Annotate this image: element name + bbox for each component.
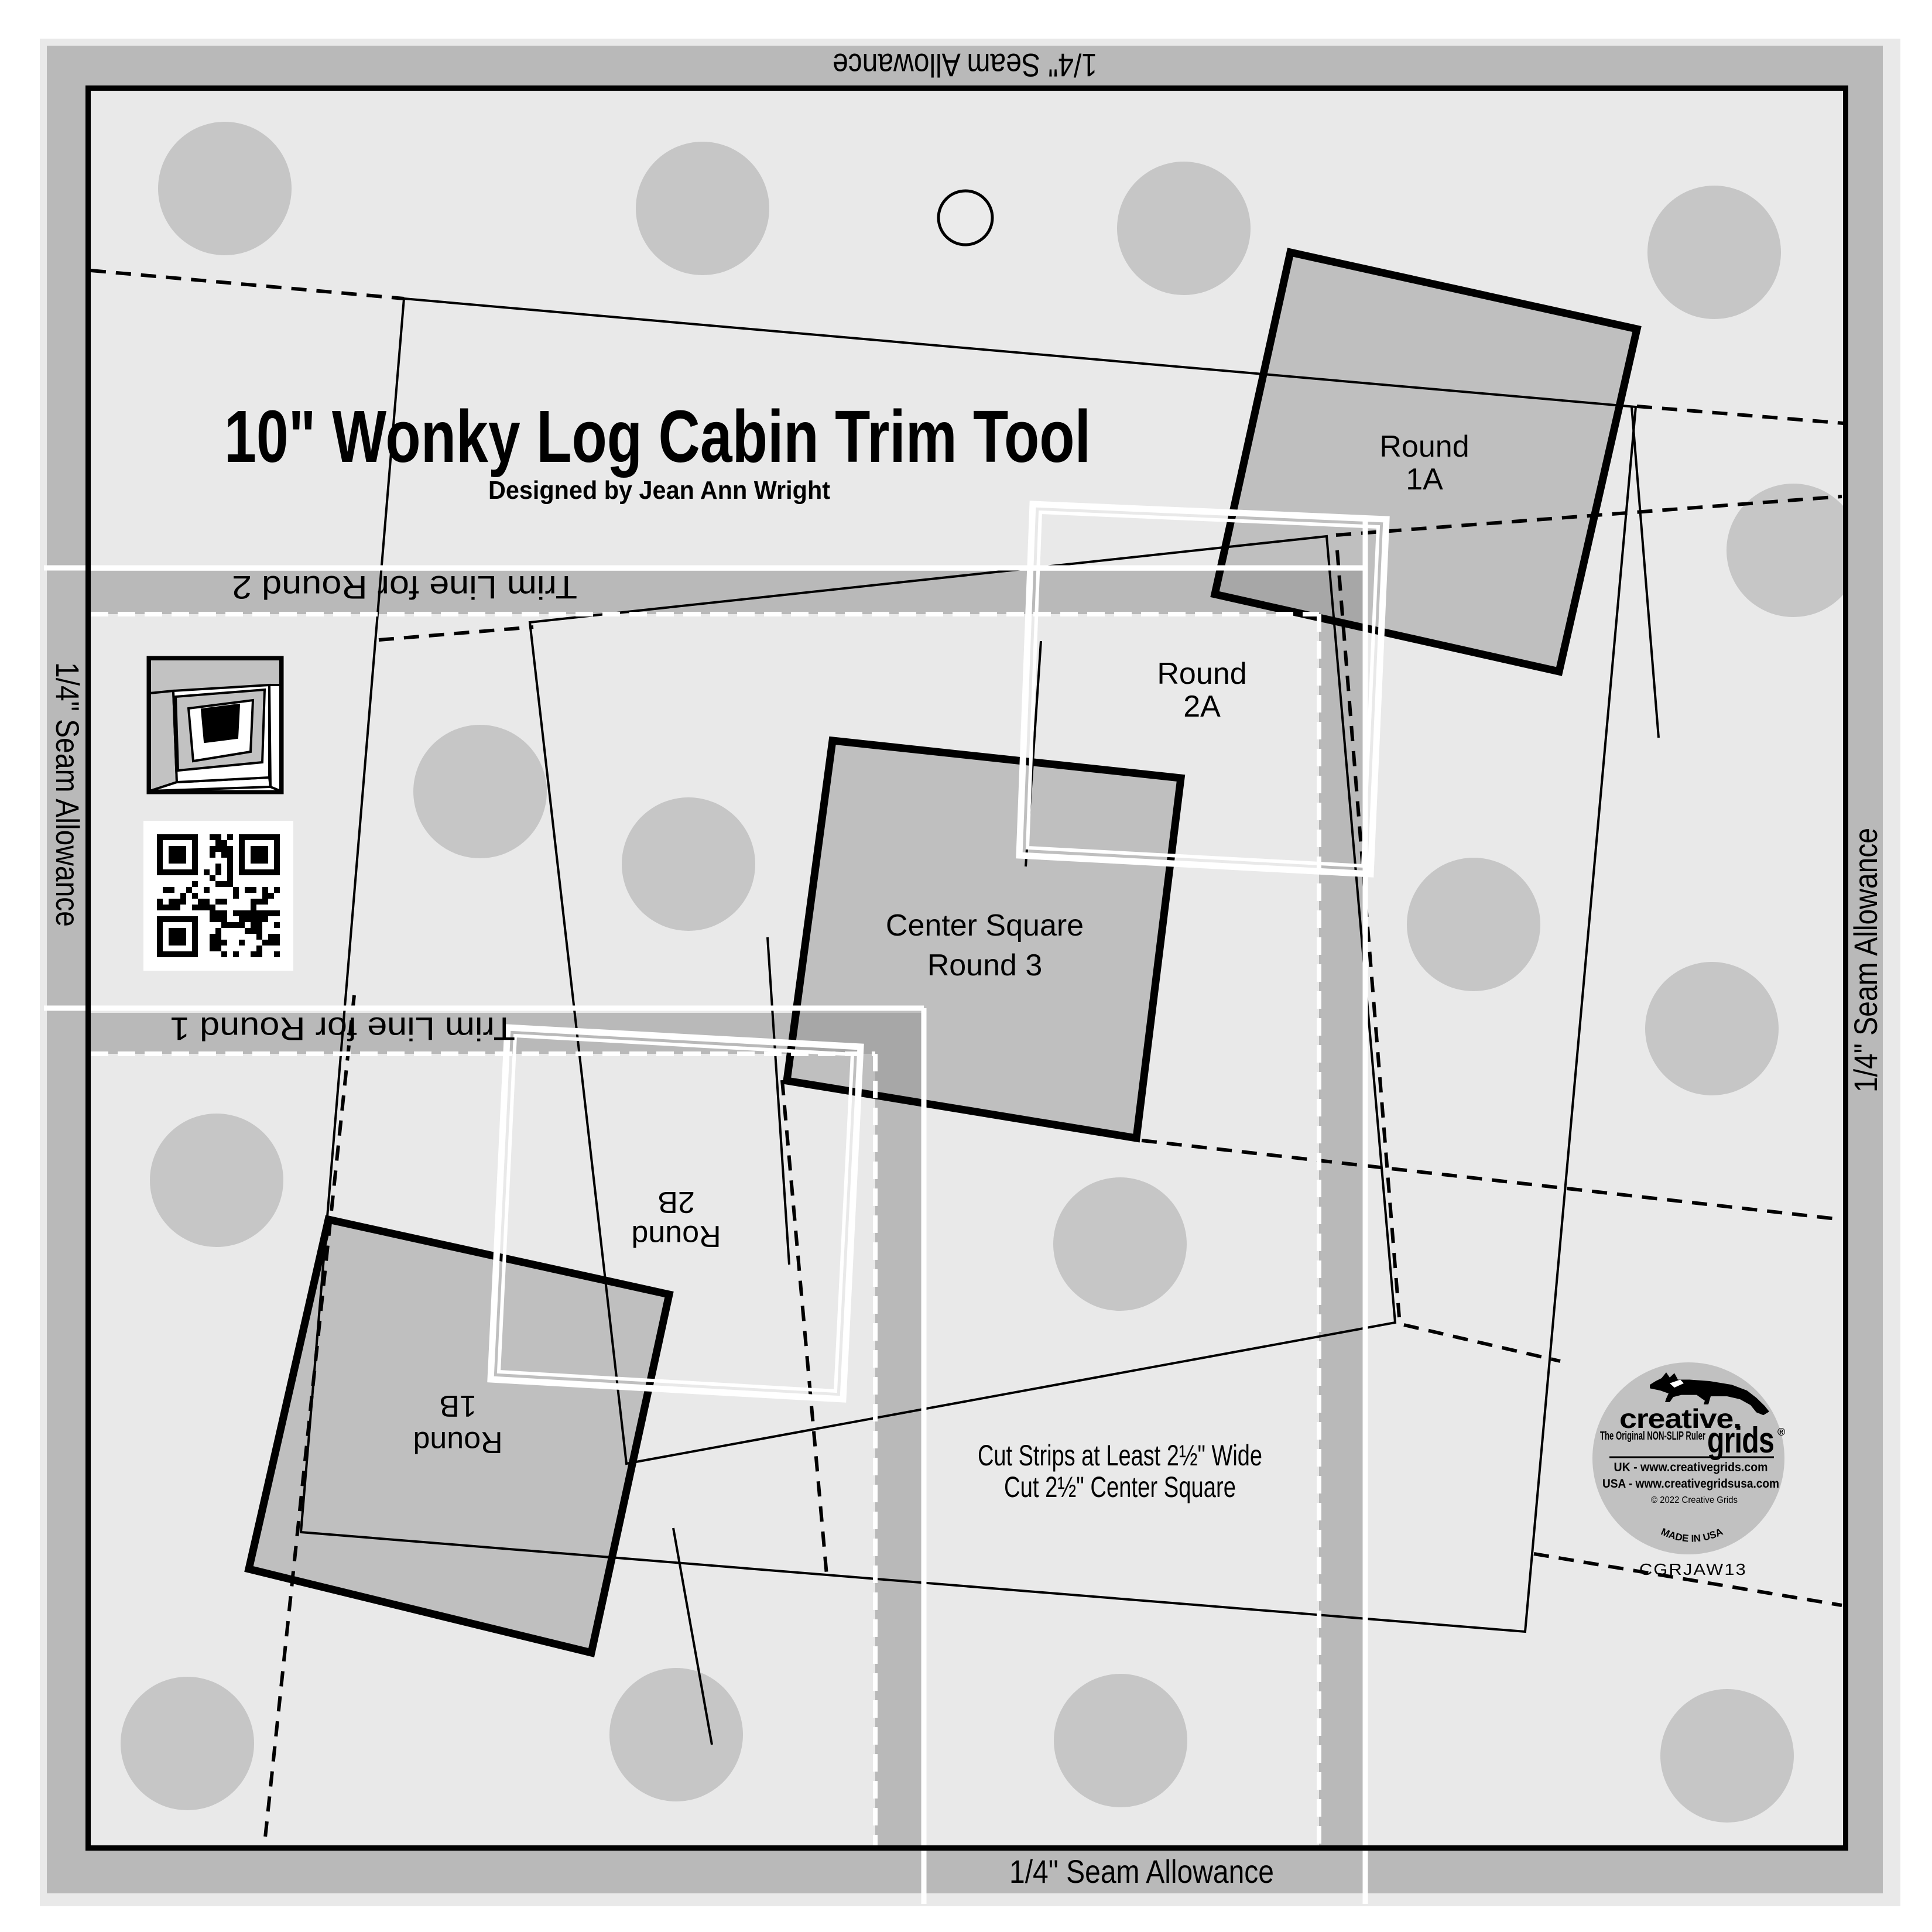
svg-text:Cut Strips at Least 2½" Wide: Cut Strips at Least 2½" Wide xyxy=(978,1439,1262,1472)
svg-text:Round: Round xyxy=(1379,430,1469,464)
svg-text:grids: grids xyxy=(1707,1420,1774,1461)
svg-text:Center Square: Center Square xyxy=(886,909,1084,943)
svg-text:Round: Round xyxy=(413,1425,502,1459)
svg-text:2A: 2A xyxy=(1183,690,1221,724)
svg-text:UK - www.creativegrids.com: UK - www.creativegrids.com xyxy=(1614,1461,1768,1474)
svg-text:1/4" Seam Allowance: 1/4" Seam Allowance xyxy=(49,662,86,927)
svg-text:1/4" Seam Allowance: 1/4" Seam Allowance xyxy=(833,47,1097,84)
svg-text:The Original NON-SLIP Ruler: The Original NON-SLIP Ruler xyxy=(1600,1430,1705,1443)
svg-text:10" Wonky Log Cabin Trim Tool: 10" Wonky Log Cabin Trim Tool xyxy=(224,395,1091,478)
svg-text:Trim Line for Round 1: Trim Line for Round 1 xyxy=(170,1010,515,1047)
svg-text:Round: Round xyxy=(1157,657,1246,691)
svg-text:Trim Line for Round 2: Trim Line for Round 2 xyxy=(232,569,577,606)
svg-text:Cut 2½" Center Square: Cut 2½" Center Square xyxy=(1004,1471,1236,1503)
svg-text:1/4" Seam Allowance: 1/4" Seam Allowance xyxy=(1009,1853,1274,1890)
svg-text:1A: 1A xyxy=(1406,463,1443,496)
svg-text:USA - www.creativegridsusa.com: USA - www.creativegridsusa.com xyxy=(1602,1477,1779,1491)
svg-text:1B: 1B xyxy=(439,1389,477,1423)
svg-text:2B: 2B xyxy=(657,1185,695,1219)
svg-text:1/4" Seam Allowance: 1/4" Seam Allowance xyxy=(1847,828,1884,1092)
svg-text:Round: Round xyxy=(631,1219,721,1253)
svg-text:© 2022 Creative Grids: © 2022 Creative Grids xyxy=(1651,1495,1738,1505)
svg-text:Designed by Jean Ann Wright: Designed by Jean Ann Wright xyxy=(488,476,830,505)
svg-text:®: ® xyxy=(1777,1426,1785,1438)
svg-text:Round 3: Round 3 xyxy=(927,948,1043,982)
svg-text:CGRJAW13: CGRJAW13 xyxy=(1639,1560,1747,1578)
